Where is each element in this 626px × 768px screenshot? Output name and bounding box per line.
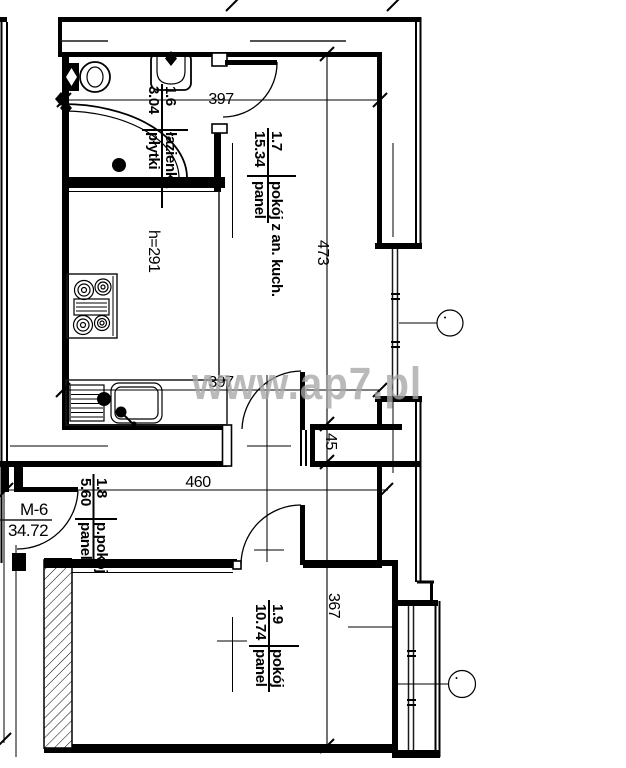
- door-leaf: [300, 505, 305, 565]
- door-room19: [233, 505, 305, 569]
- room-area: 3.04: [145, 86, 162, 115]
- window-room19: [392, 600, 440, 758]
- drain-icon: [112, 158, 126, 172]
- apartment-area: 34.72: [8, 521, 48, 540]
- window-annotation-lower: [348, 627, 476, 698]
- room-area: 5.60: [77, 478, 94, 506]
- stove-symbol: [67, 274, 117, 338]
- floor-plan-drawing: 397 397 460 473 45 367 1.6: [0, 0, 626, 768]
- door-leaf: [225, 60, 277, 65]
- room-name: pokój z an. kuch.: [268, 181, 285, 297]
- room-label-bathroom: 1.6 łazienka 3.04 płytki: [142, 84, 188, 208]
- window-annotation-upper: [399, 310, 463, 336]
- circle-marker-icon: [437, 310, 463, 336]
- room-floor: panel: [251, 181, 268, 219]
- hatched-wall: [44, 560, 72, 748]
- room-number: 1.9: [269, 604, 286, 624]
- toilet-symbol: [64, 62, 110, 92]
- dim-wall-offset: 45: [322, 433, 339, 450]
- ceiling-height-label: h=291: [145, 230, 162, 273]
- room-number: 1.8: [93, 478, 110, 498]
- room-label-main-room: 1.7 pokój z an. kuch. 15.34 panel: [247, 128, 296, 297]
- circle-marker-icon: [449, 671, 476, 698]
- drain-icon: [97, 392, 111, 406]
- room-area: 10.74: [252, 604, 269, 641]
- room-floor: panel: [252, 649, 269, 687]
- room-label-bedroom: 1.9 pokój 10.74 panel: [249, 600, 299, 692]
- dim-hallway-width: 460: [185, 474, 211, 491]
- floor-plan-page: 397 397 460 473 45 367 1.6: [0, 0, 626, 768]
- watermark-text: www.ap7.pl: [191, 358, 422, 409]
- apartment-label: M-6 34.72: [0, 500, 52, 540]
- room-area: 15.34: [251, 131, 268, 168]
- room-name: łazienka: [162, 132, 179, 189]
- dim-main-room-depth: 473: [314, 240, 331, 266]
- room-label-hallway: 1.8 p.pokój 5.60 panel: [75, 474, 117, 573]
- room-number: 1.6: [162, 86, 179, 106]
- room-floor: panel: [77, 522, 94, 560]
- apartment-code: M-6: [20, 500, 48, 519]
- room-number: 1.7: [268, 131, 285, 151]
- room-name: pokój: [269, 649, 286, 688]
- room-name: p.pokój: [93, 522, 110, 573]
- room-floor: płytki: [145, 132, 162, 170]
